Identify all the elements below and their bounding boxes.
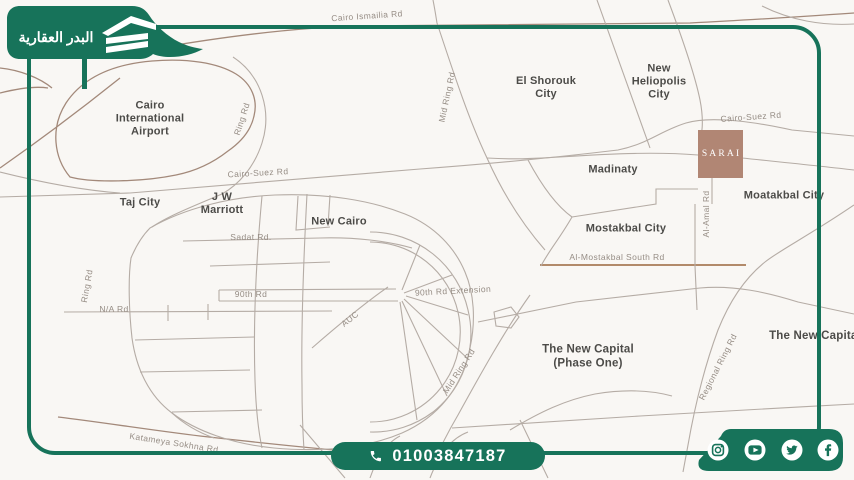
road-segment [510, 391, 672, 430]
road-segment [172, 410, 262, 412]
place-label-el-shorouk-city: El Shorouk City [510, 75, 582, 101]
road-sadat [183, 238, 412, 248]
twitter-icon[interactable] [782, 440, 803, 461]
phone-contact-button[interactable]: 01003847187 [331, 442, 545, 470]
logo-arabic-text: البدر العقارية [19, 29, 94, 46]
road-segment [528, 160, 572, 266]
phone-icon [369, 449, 383, 463]
road-segment [135, 337, 254, 340]
place-label-madinaty: Madinaty [588, 164, 637, 177]
road-segment [210, 262, 330, 266]
road-segment [572, 189, 698, 217]
place-label-moatakbal-city: Moatakbal City [744, 190, 824, 203]
road-al-amal [695, 204, 697, 310]
facebook-icon[interactable] [818, 440, 839, 461]
road-network-brown [0, 13, 854, 457]
place-label-cairo-international-airport: Cairo International Airport [103, 100, 198, 139]
place-label-new-heliopolis-city: New Heliopolis City [624, 63, 694, 102]
road-label-al-mostakbal-south: Al-Mostakbal South Rd [569, 253, 664, 262]
road-label-90th-rd: 90th Rd [235, 290, 268, 299]
road-label-al-amal: Al-Amal Rd [702, 191, 711, 238]
road-segment [452, 404, 854, 428]
road-segment [487, 157, 560, 159]
instagram-icon[interactable] [708, 440, 729, 461]
social-media-bar [695, 428, 847, 473]
road-segment [0, 172, 120, 193]
road-segment [0, 87, 48, 93]
road-mid-ring-north [433, 0, 545, 250]
new-capital-boundary [478, 287, 854, 322]
phone-number: 01003847187 [392, 447, 506, 466]
road-segment [302, 194, 307, 450]
road-ring-arc-outer [370, 232, 471, 432]
road-network [0, 0, 854, 480]
place-label-new-capital-phase-one: The New Capital (Phase One) [528, 343, 648, 370]
road-segment [762, 6, 854, 24]
road-segment [0, 68, 52, 88]
road-label-sadat: Sadat Rd. [230, 233, 271, 242]
road-network-gray [0, 0, 854, 478]
map-flyer: Cairo International Airport Taj City J W… [0, 0, 854, 480]
sarai-project-label: SARAI [700, 149, 742, 159]
road-cairo-ismailia [158, 13, 854, 48]
road-segment [140, 370, 250, 372]
place-label-mostakbal-city: Mostakbal City [586, 223, 666, 236]
place-label-taj-city: Taj City [120, 197, 161, 210]
road-fan-spokes [400, 245, 468, 420]
sarai-project-marker: SARAI [698, 130, 743, 178]
road-label-na-rd: N/A Rd [99, 305, 128, 314]
place-label-new-capital: The New Capital [769, 330, 854, 344]
place-label-jw-marriott: J W Marriott [193, 191, 251, 217]
place-label-new-cairo: New Cairo [311, 216, 367, 229]
company-logo: البدر العقارية [4, 4, 206, 64]
youtube-icon[interactable] [745, 440, 766, 461]
